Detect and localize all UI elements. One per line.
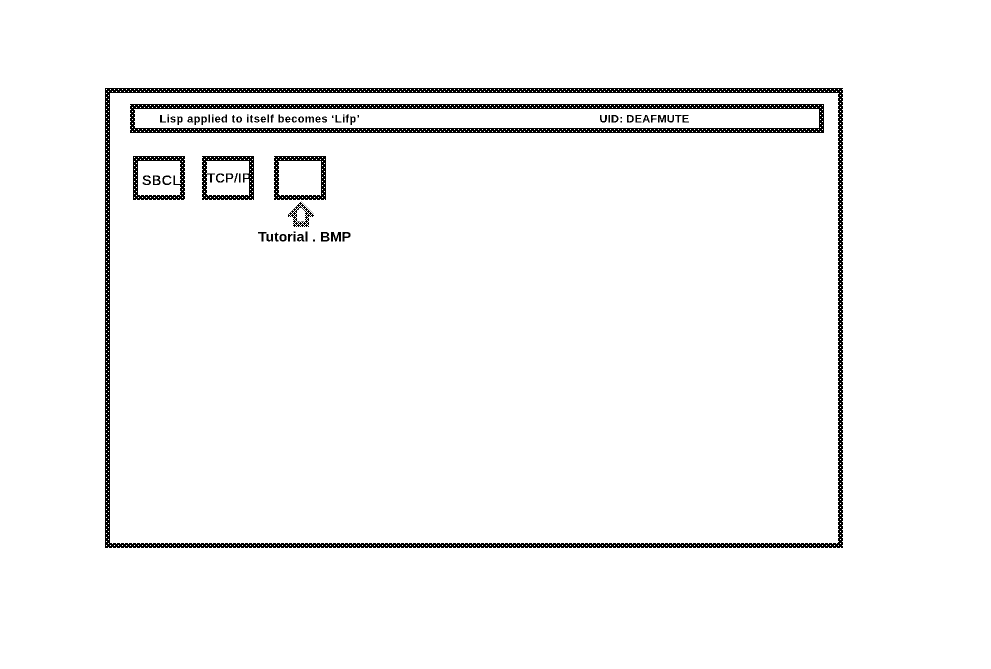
svg-text:TCP/IP: TCP/IP <box>207 171 251 186</box>
svg-text:Tutorial . BMP: Tutorial . BMP <box>258 229 351 245</box>
svg-text:SBCL: SBCL <box>142 172 181 188</box>
svg-text:UID: DEAFMUTE: UID: DEAFMUTE <box>600 114 690 126</box>
svg-text:Lisp applied to itself becomes: Lisp applied to itself becomes ‘Lifp’ <box>160 114 360 126</box>
